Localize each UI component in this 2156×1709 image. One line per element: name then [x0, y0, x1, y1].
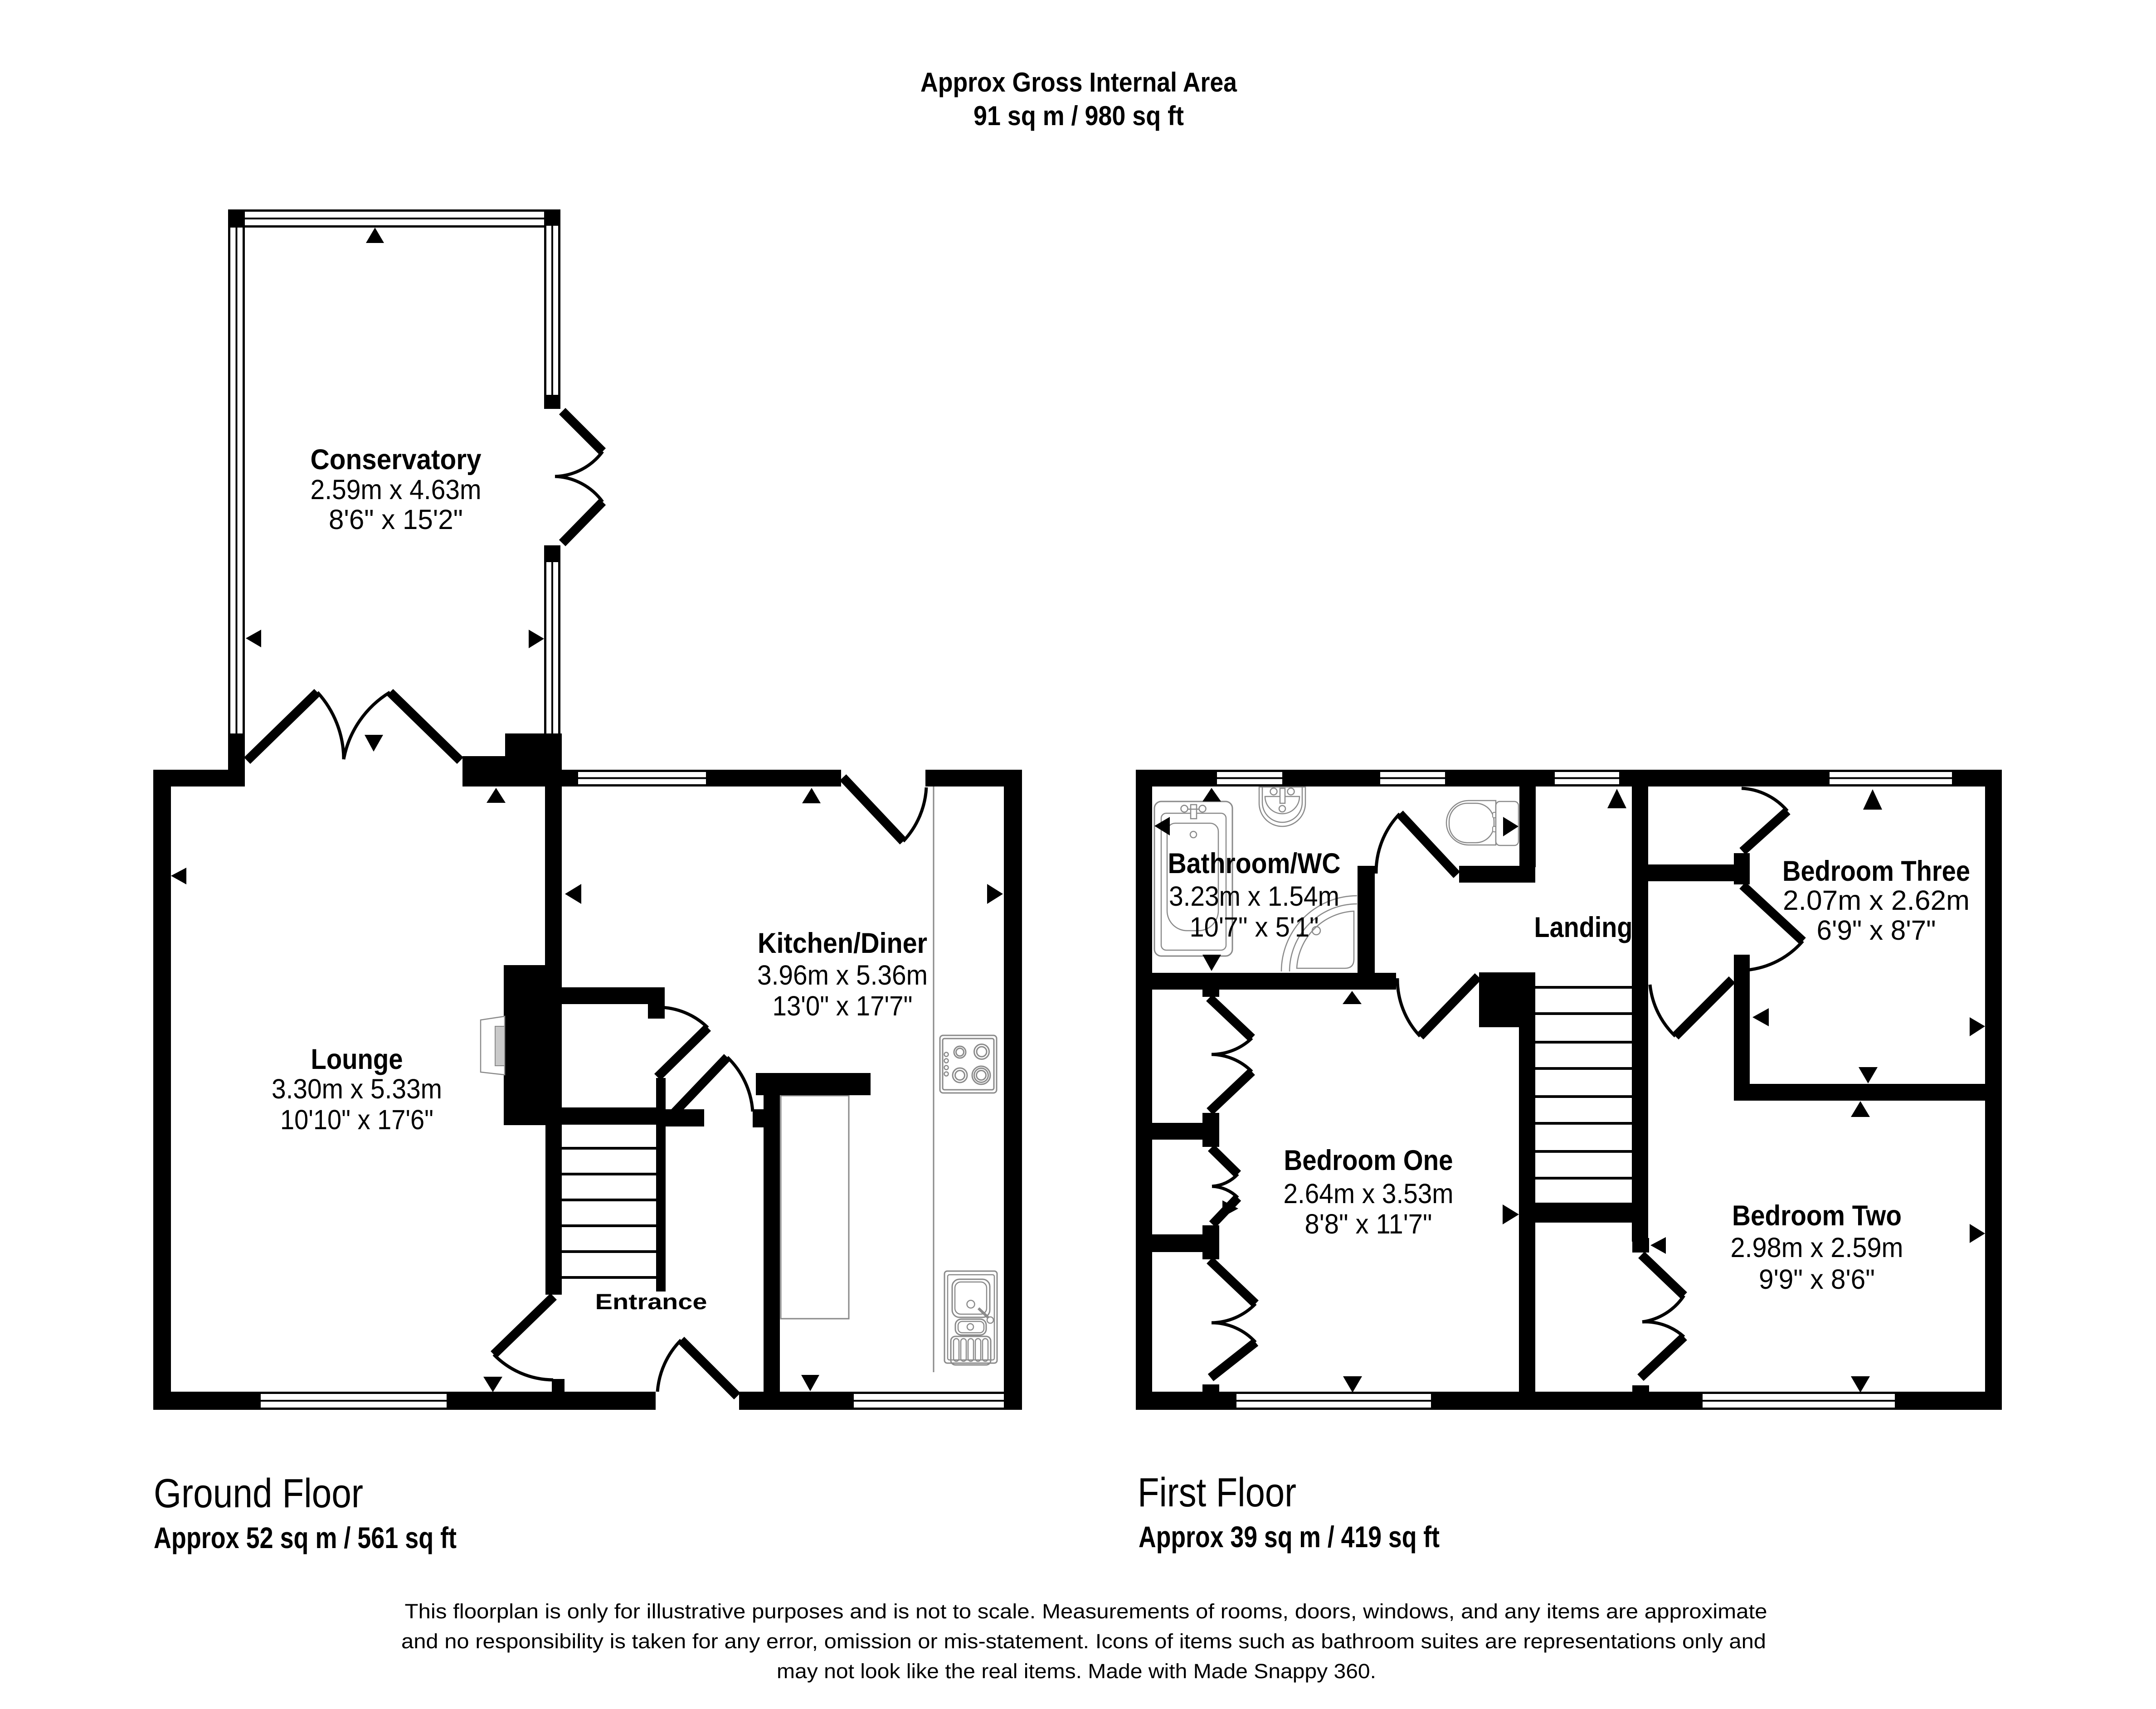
svg-text:Conservatory: Conservatory [311, 444, 482, 476]
svg-text:Approx 39 sq m / 419 sq ft: Approx 39 sq m / 419 sq ft [1139, 1520, 1440, 1554]
svg-text:Approx 52 sq m / 561 sq ft: Approx 52 sq m / 561 sq ft [154, 1521, 457, 1554]
svg-text:3.30m x 5.33m: 3.30m x 5.33m [272, 1073, 442, 1104]
svg-text:First Floor: First Floor [1138, 1470, 1296, 1515]
svg-text:Bedroom Two: Bedroom Two [1732, 1200, 1902, 1232]
svg-text:6'9" x 8'7": 6'9" x 8'7" [1817, 915, 1936, 946]
svg-text:13'0" x 17'7": 13'0" x 17'7" [773, 990, 913, 1021]
svg-text:10'7" x 5'1": 10'7" x 5'1" [1190, 912, 1319, 942]
svg-text:Lounge: Lounge [311, 1044, 403, 1075]
svg-text:Approx Gross Internal Area: Approx Gross Internal Area [920, 67, 1237, 97]
svg-text:2.64m x 3.53m: 2.64m x 3.53m [1284, 1178, 1454, 1209]
svg-text:8'6" x 15'2": 8'6" x 15'2" [329, 504, 463, 535]
svg-text:8'8" x 11'7": 8'8" x 11'7" [1305, 1209, 1432, 1239]
svg-text:2.98m x 2.59m: 2.98m x 2.59m [1731, 1232, 1903, 1263]
svg-text:Bathroom/WC: Bathroom/WC [1168, 848, 1341, 879]
svg-text:Kitchen/Diner: Kitchen/Diner [758, 927, 927, 959]
svg-text:3.23m x 1.54m: 3.23m x 1.54m [1169, 881, 1339, 912]
svg-text:Landing: Landing [1534, 912, 1633, 943]
svg-text:and no responsibility is taken: and no responsibility is taken for any e… [401, 1630, 1766, 1653]
svg-text:10'10" x 17'6": 10'10" x 17'6" [280, 1104, 433, 1135]
svg-text:Bedroom One: Bedroom One [1284, 1145, 1453, 1176]
svg-text:9'9" x 8'6": 9'9" x 8'6" [1759, 1264, 1875, 1295]
svg-text:Entrance: Entrance [595, 1290, 707, 1314]
svg-text:91 sq m / 980 sq ft: 91 sq m / 980 sq ft [973, 101, 1184, 131]
svg-text:2.07m x 2.62m: 2.07m x 2.62m [1783, 885, 1970, 916]
svg-text:2.59m x 4.63m: 2.59m x 4.63m [311, 474, 482, 505]
svg-text:3.96m x 5.36m: 3.96m x 5.36m [757, 960, 928, 990]
svg-text:Bedroom Three: Bedroom Three [1782, 855, 1970, 887]
svg-text:This floorplan is only for ill: This floorplan is only for illustrative … [405, 1600, 1767, 1623]
svg-text:may not look like the real ite: may not look like the real items. Made w… [777, 1660, 1376, 1683]
svg-text:Ground Floor: Ground Floor [154, 1471, 363, 1516]
